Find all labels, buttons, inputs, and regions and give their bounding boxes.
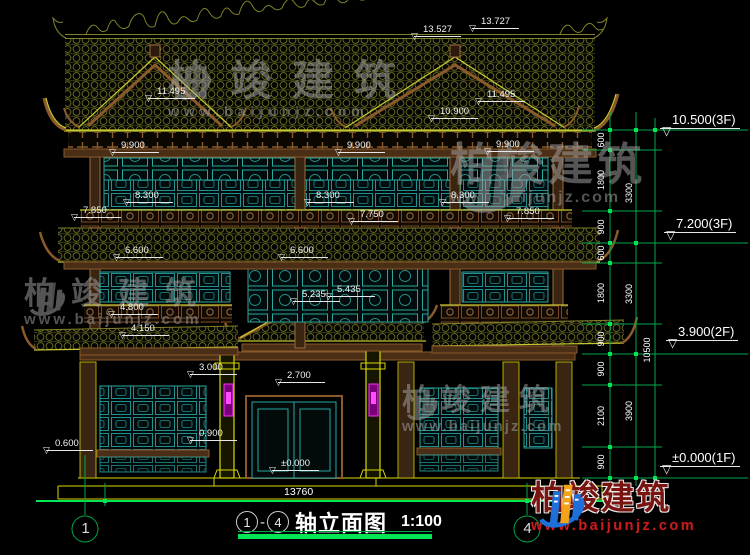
brand-icon (24, 278, 68, 328)
cad-viewport: 柏竣建筑 www.baijunjz.com 柏竣建筑 www.baijunjz.… (0, 0, 750, 555)
watermark: 柏竣建筑 www.baijunjz.com (24, 278, 212, 330)
title-underline-thick (238, 534, 432, 539)
axis-bubble-circle-1 (72, 516, 98, 542)
brand-icon (168, 60, 214, 112)
title-axis-separator: - (260, 514, 265, 531)
brand-icon (402, 386, 440, 432)
watermark: 柏竣建筑 www.baijunjz.com (402, 386, 563, 437)
title-axis-start-bubble: 1 (236, 511, 258, 533)
title-axis-end-bubble: 4 (267, 511, 289, 533)
overall-width-dimension: 13760 (284, 486, 313, 498)
brand-logo-icon (531, 480, 589, 542)
brand-logo: 柏竣建筑 www.baijunjz.com (531, 480, 696, 534)
watermark: 柏竣建筑 www.baijunjz.com (168, 60, 416, 122)
title-scale: 1:100 (401, 513, 442, 531)
watermark: 柏竣建筑 www.baijunjz.com (450, 142, 646, 209)
first-floor-left-window (100, 386, 206, 450)
second-floor-center-windows (248, 262, 428, 322)
title-underline-thin (238, 531, 432, 532)
second-roof (40, 228, 618, 269)
brand-icon (450, 142, 534, 234)
ridge-crest (86, 0, 408, 34)
